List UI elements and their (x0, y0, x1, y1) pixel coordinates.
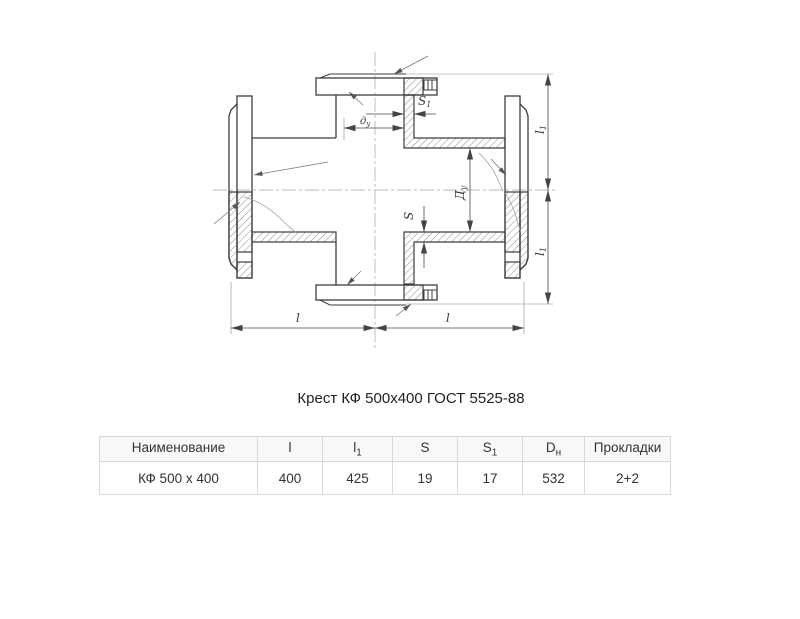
leader-top-gasket (394, 56, 428, 74)
right-raised-face-section (520, 192, 528, 270)
dim-label-du: ду (360, 116, 371, 128)
cell-Dn: 532 (523, 462, 585, 495)
leader-bottom-gasket (396, 304, 411, 316)
dimensions-table: Наименование l l1 S S1 Dн Прокладки КФ 5… (99, 436, 671, 495)
leader-right-flange (491, 159, 506, 175)
run-bottom-left-wall-section (252, 232, 336, 242)
col-header-name: Наименование (100, 437, 258, 462)
col-header-Dn: Dн (523, 437, 585, 462)
col-header-S: S (393, 437, 458, 462)
branch-bottom-right-wall-section (404, 232, 505, 284)
dim-label-Du: Ду (453, 185, 468, 201)
cross-section-drawing: l l l1 l1 Ду ду S S1 (0, 0, 800, 375)
page: l l l1 l1 Ду ду S S1 Крест КФ 500х400 ГО… (0, 0, 800, 619)
right-flange-section-lower (505, 262, 520, 278)
dim-label-S: S (402, 212, 416, 220)
top-flange-plate (316, 78, 437, 95)
cell-S1: 17 (458, 462, 523, 495)
bottom-flange-bolt-hole (424, 290, 437, 300)
col-header-gaskets: Прокладки (585, 437, 671, 462)
col-header-l: l (258, 437, 323, 462)
leader-bottom-flange (347, 271, 361, 285)
left-raised-face-section (229, 192, 237, 270)
cell-name: КФ 500 х 400 (100, 462, 258, 495)
body-outline (229, 74, 528, 305)
cell-l1: 425 (323, 462, 393, 495)
dim-label-S1: S1 (418, 94, 431, 109)
section-hatching (229, 78, 528, 300)
dim-label-l1-bottom: l1 (533, 247, 548, 256)
break-lines (244, 153, 521, 233)
dim-label-l-left: l (296, 311, 300, 325)
col-header-S1: S1 (458, 437, 523, 462)
left-flange-section-upper (237, 192, 252, 252)
table-row: КФ 500 х 400 400 425 19 17 532 2+2 (100, 462, 671, 495)
drawing-title: Крест КФ 500х400 ГОСТ 5525-88 (0, 390, 800, 407)
cell-S: 19 (393, 462, 458, 495)
leader-left-pipe (254, 162, 328, 175)
dimension-lines (231, 74, 548, 334)
cell-l: 400 (258, 462, 323, 495)
dim-label-l-right: l (446, 311, 450, 325)
col-header-l1: l1 (323, 437, 393, 462)
bottom-flange-section (404, 285, 423, 300)
dim-label-l1-top: l1 (533, 125, 548, 134)
bottom-gasket (320, 300, 406, 305)
left-flange-section-lower (237, 262, 252, 278)
cell-gaskets: 2+2 (585, 462, 671, 495)
table-header-row: Наименование l l1 S S1 Dн Прокладки (100, 437, 671, 462)
technical-drawing: l l l1 l1 Ду ду S S1 (0, 0, 800, 375)
